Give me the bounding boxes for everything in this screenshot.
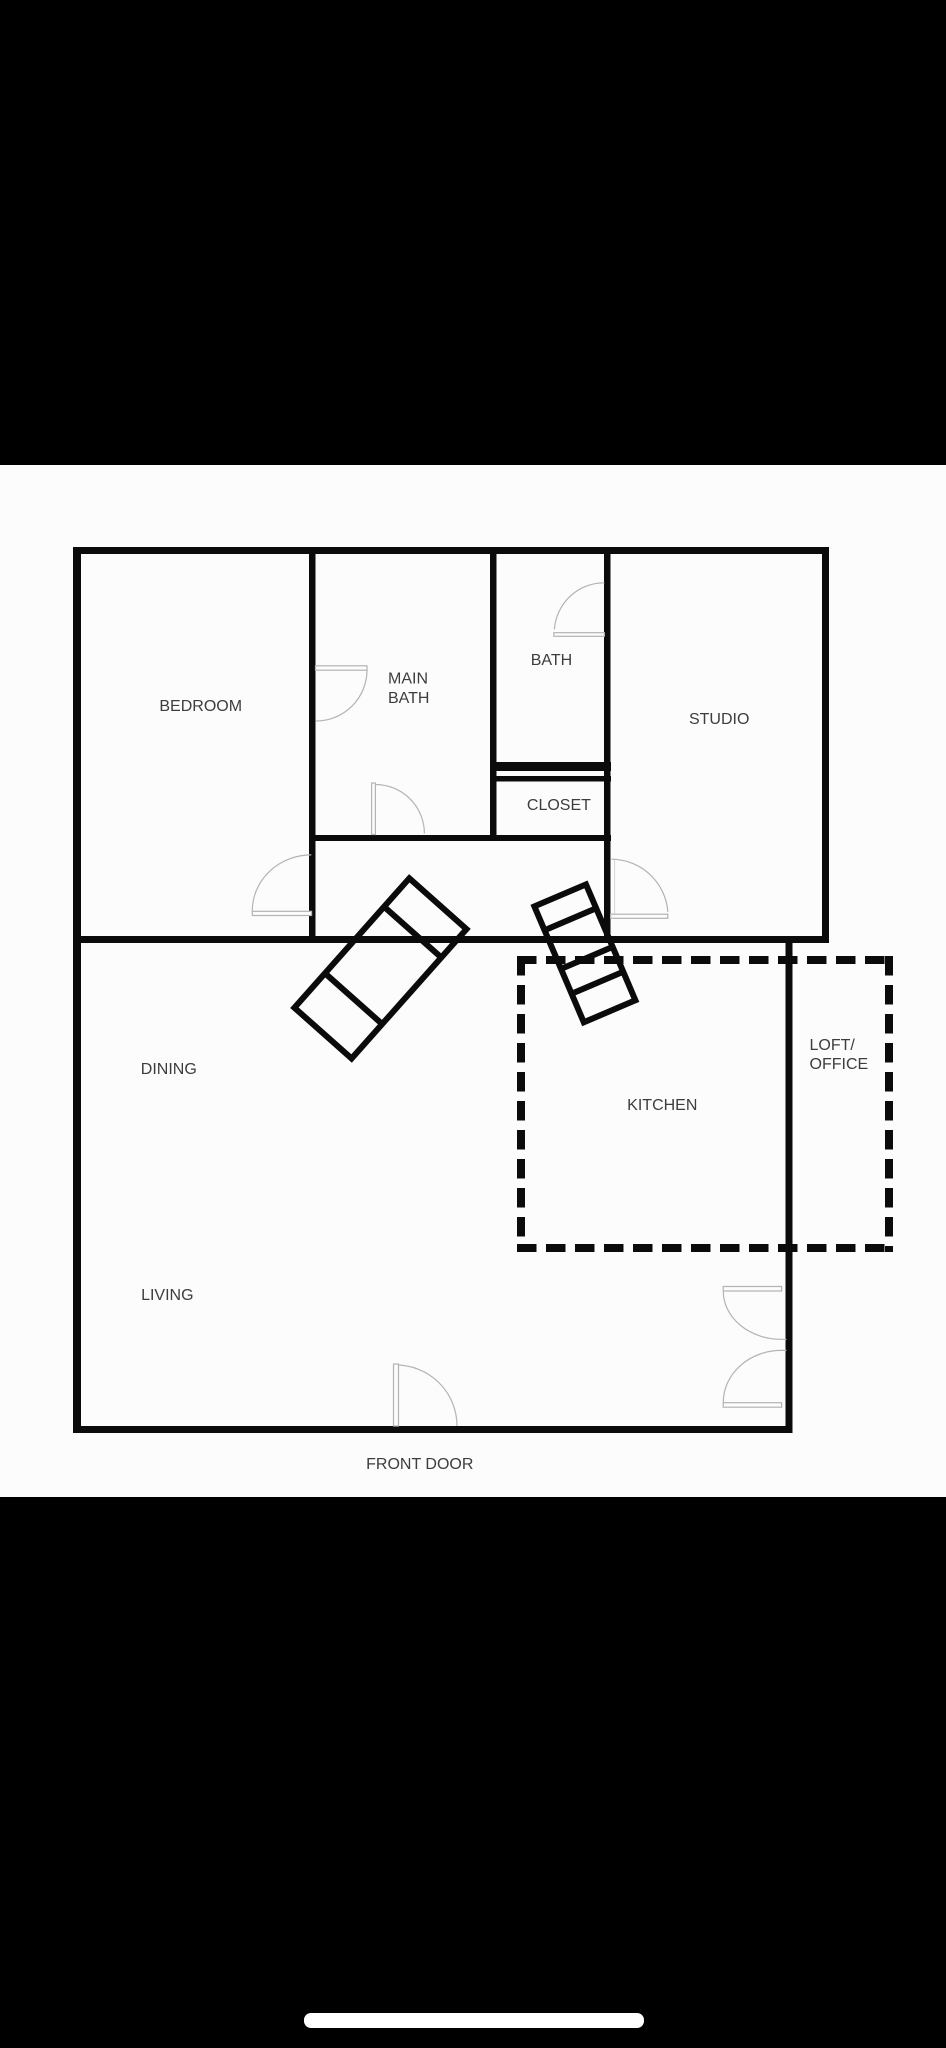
- svg-text:BATH: BATH: [531, 652, 572, 669]
- svg-text:DINING: DINING: [141, 1061, 197, 1078]
- svg-text:STUDIO: STUDIO: [689, 711, 749, 728]
- svg-text:BATH: BATH: [388, 690, 429, 707]
- svg-text:KITCHEN: KITCHEN: [627, 1097, 697, 1114]
- svg-text:FRONT DOOR: FRONT DOOR: [366, 1456, 473, 1473]
- svg-text:MAIN: MAIN: [388, 671, 428, 688]
- svg-text:LIVING: LIVING: [141, 1287, 193, 1304]
- svg-text:CLOSET: CLOSET: [527, 797, 591, 814]
- svg-text:BEDROOM: BEDROOM: [159, 698, 242, 715]
- svg-text:OFFICE: OFFICE: [810, 1056, 869, 1073]
- svg-text:LOFT/: LOFT/: [810, 1037, 856, 1054]
